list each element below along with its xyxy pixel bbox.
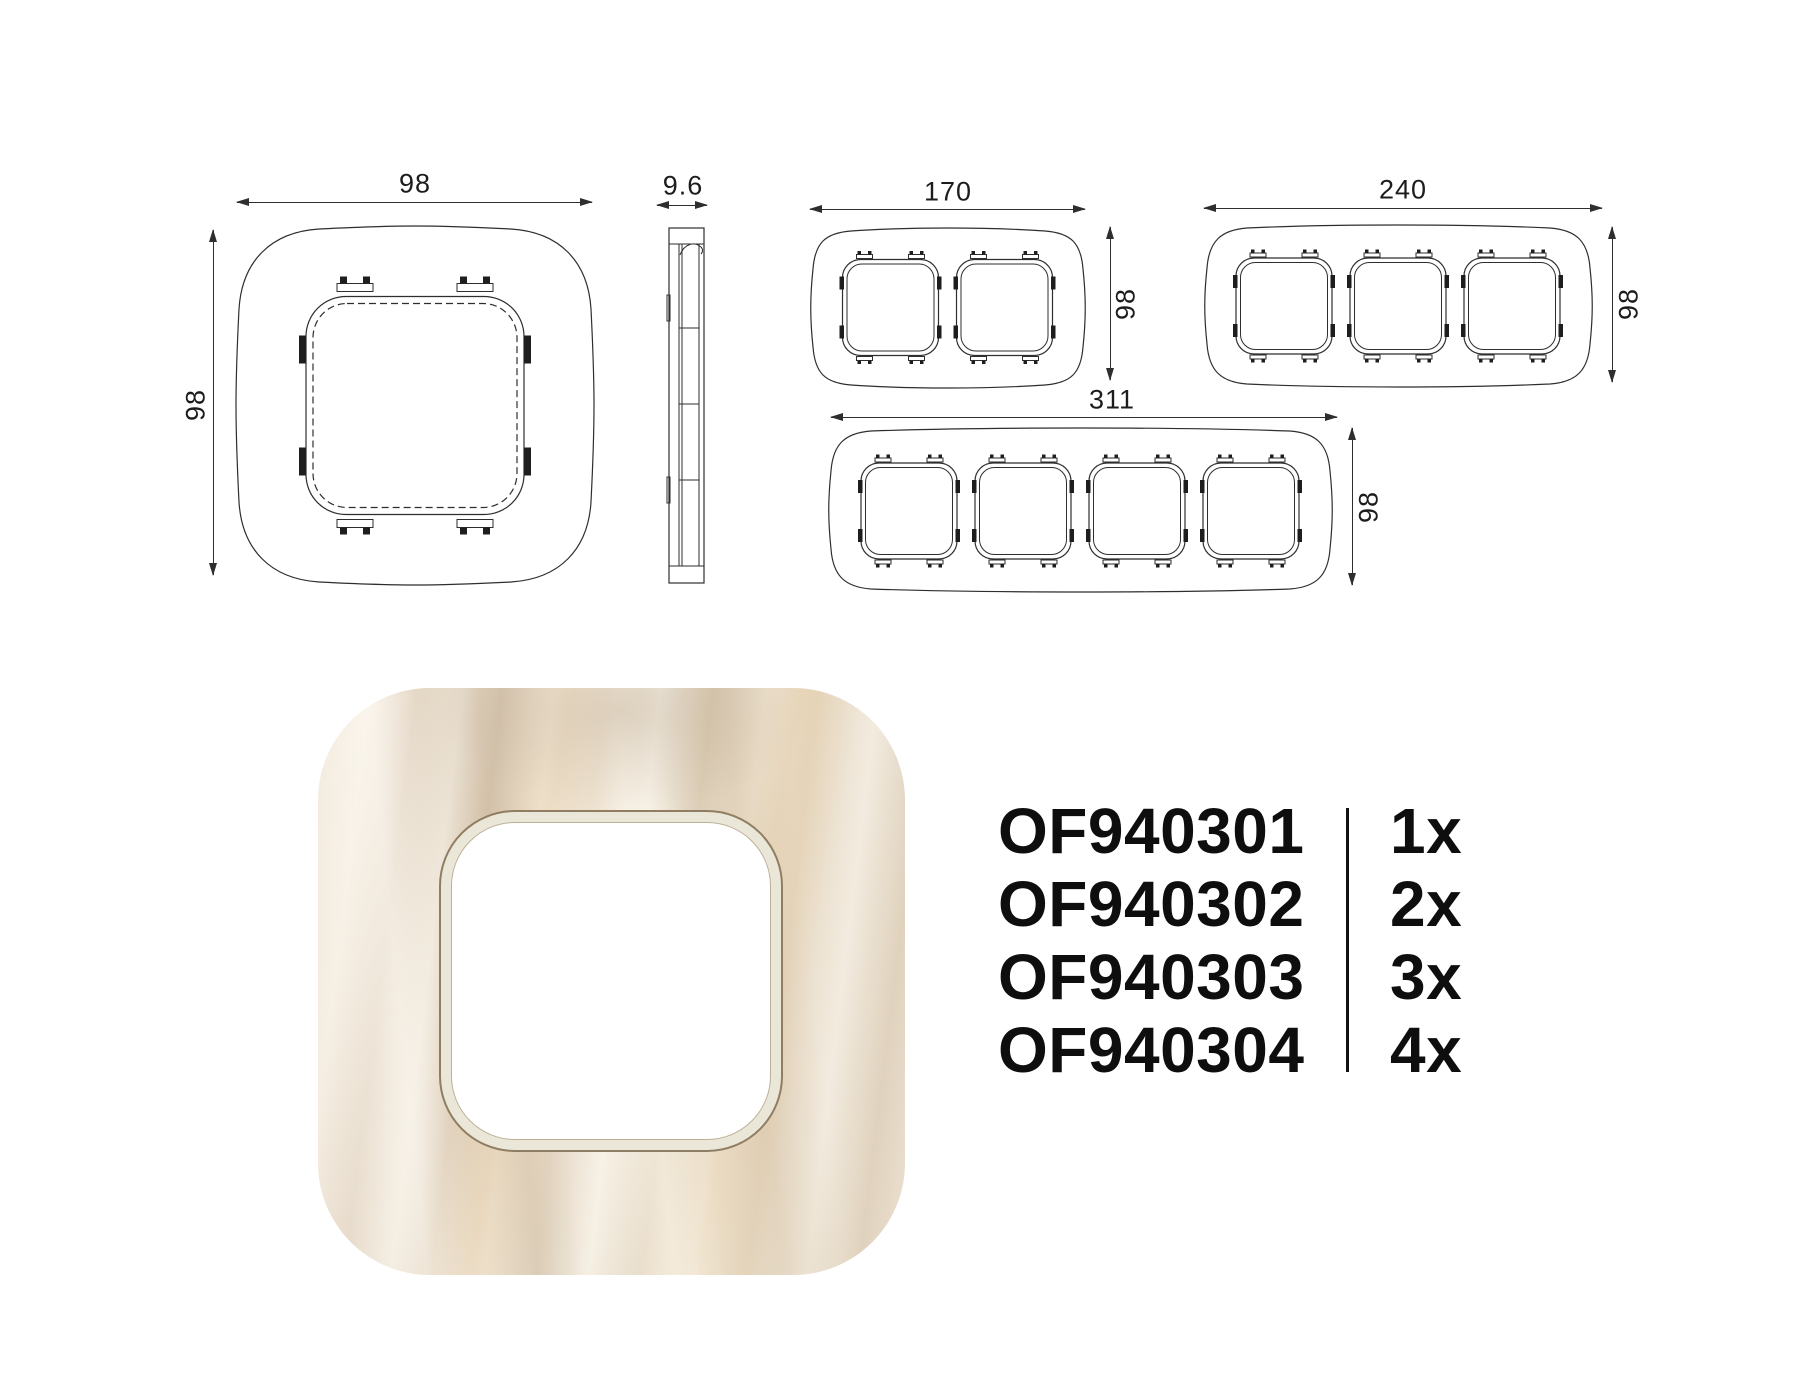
drawing-3gang-front	[1204, 225, 1593, 387]
dim-label-1gang-height: 98	[181, 389, 212, 421]
product-code: OF940302	[998, 868, 1304, 941]
dim-line-1gang-width	[237, 202, 592, 203]
dim-label-depth: 9.6	[663, 171, 704, 202]
dim-label-3gang-width: 240	[1379, 175, 1427, 206]
dim-line-3gang-width	[1204, 208, 1602, 209]
drawing-2gang-front	[810, 228, 1086, 388]
product-qty: 2x	[1390, 868, 1462, 941]
dim-label-2gang-width: 170	[924, 177, 972, 208]
product-code: OF940304	[998, 1014, 1304, 1087]
product-qty: 1x	[1390, 795, 1462, 868]
product-qty-list: 1x 2x 3x 4x	[1390, 795, 1462, 1087]
dim-label-4gang-width: 311	[1089, 385, 1135, 416]
dim-line-2gang-width	[810, 209, 1085, 210]
drawing-1gang-front	[235, 225, 595, 586]
dim-line-4gang-width	[831, 417, 1337, 418]
dim-line-depth	[657, 205, 707, 206]
dim-label-2gang-height: 98	[1111, 288, 1142, 320]
dim-label-1gang-width: 98	[399, 169, 431, 200]
product-code: OF940301	[998, 795, 1304, 868]
divider-line	[1346, 808, 1349, 1072]
dim-label-3gang-height: 98	[1614, 288, 1645, 320]
dim-label-4gang-height: 98	[1354, 491, 1385, 523]
product-qty: 3x	[1390, 941, 1462, 1014]
product-render-1gang	[318, 688, 905, 1275]
render-opening-rim	[439, 810, 783, 1152]
product-code: OF940303	[998, 941, 1304, 1014]
product-qty: 4x	[1390, 1014, 1462, 1087]
product-code-list: OF940301 OF940302 OF940303 OF940304	[998, 795, 1304, 1087]
dim-line-1gang-height	[213, 230, 214, 575]
drawing-4gang-front	[828, 428, 1333, 592]
render-opening-hole	[451, 822, 771, 1140]
datasheet-canvas: 98 98 9.6 170 98 240 98 311 98 OF940301 …	[0, 0, 1800, 1400]
drawing-side-profile	[668, 227, 708, 584]
